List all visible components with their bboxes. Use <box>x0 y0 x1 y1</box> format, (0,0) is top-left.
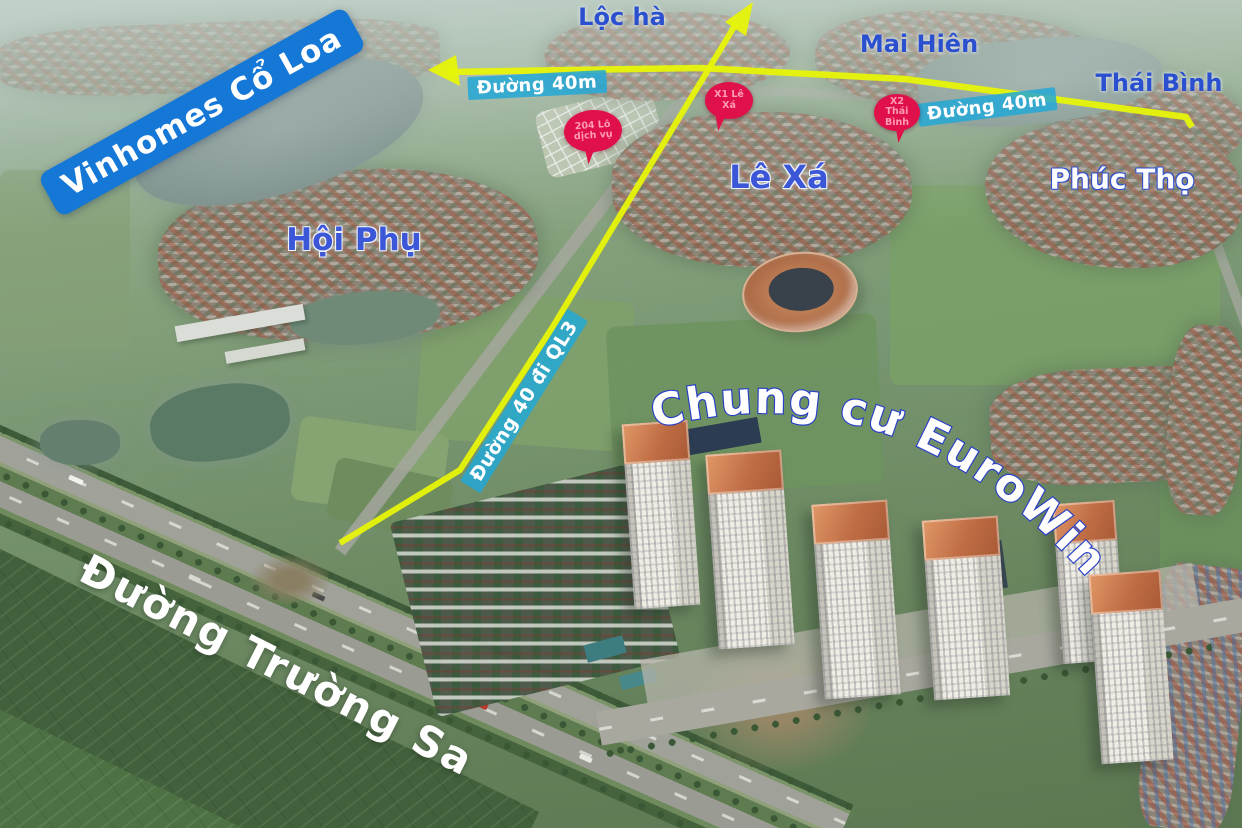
marker-x2-thai-binh: X2 Thái Bình <box>874 94 920 131</box>
marker-x1-le-xa: X1 Lê Xá <box>705 82 753 119</box>
tower-roof <box>622 420 691 465</box>
tower-roof <box>1052 500 1117 544</box>
place-label-le-xa: Lê Xá <box>729 158 829 196</box>
tower-roof <box>1088 570 1163 615</box>
pond <box>40 420 120 465</box>
dirt-patch <box>250 555 330 605</box>
vehicle <box>188 574 201 583</box>
marker-label: X1 Lê Xá <box>710 90 748 111</box>
place-label-mai-hien: Mai Hiên <box>860 30 978 58</box>
place-label-hoi-phu: Hội Phụ <box>286 222 422 258</box>
eurowindow-tower <box>705 450 794 650</box>
stadium-roof-center <box>767 266 834 312</box>
tower-roof <box>705 450 784 495</box>
marker-label: X2 Thái Bình <box>877 97 917 128</box>
eurowindow-tower <box>1088 570 1173 765</box>
tower-roof <box>922 516 1001 561</box>
tower-roof <box>811 500 890 545</box>
eurowindow-tower <box>922 516 1010 701</box>
eurowindow-tower <box>622 420 701 609</box>
place-label-thai-binh: Thái Bình <box>1096 69 1223 97</box>
place-label-loc-ha: Lộc hà <box>578 3 666 31</box>
marker-label: 204 Lô dịch vụ <box>569 119 616 143</box>
aerial-photo: Chung cư EuroWindow Đường 40m Đường 40m … <box>0 0 1242 828</box>
eurowindow-tower <box>811 500 900 700</box>
place-label-phuc-tho: Phúc Thọ <box>1049 163 1194 196</box>
